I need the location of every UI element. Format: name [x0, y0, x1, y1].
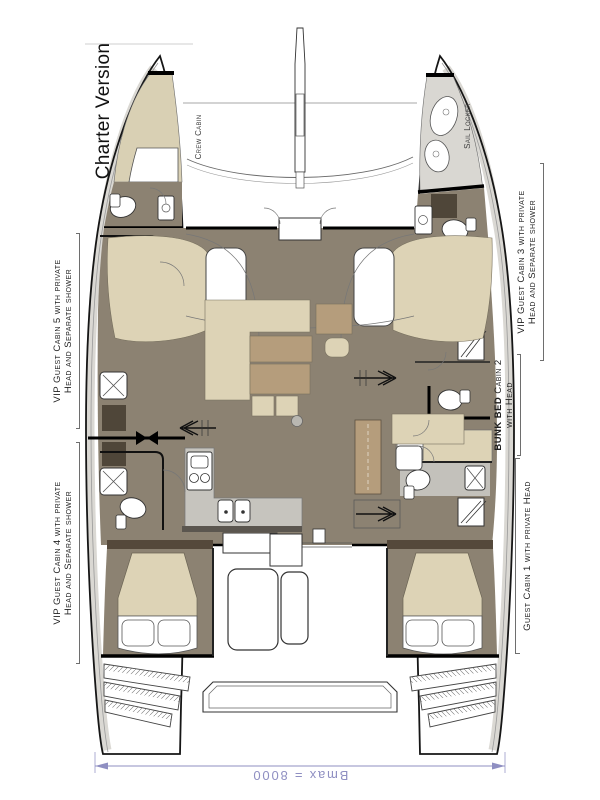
cockpit-step	[270, 534, 302, 566]
transom-steps-port	[104, 664, 190, 727]
crew-bed-foot	[129, 148, 178, 182]
seat	[250, 364, 310, 394]
aft-platform	[203, 682, 397, 712]
label-cabin-4: VIP Guest Cabin 4 with private Head and …	[0, 539, 177, 567]
pillow	[406, 620, 438, 646]
cockpit-bench	[223, 533, 277, 553]
cockpit-table	[281, 572, 308, 644]
label-cabin-1: Guest Cabin 1 with private Head	[426, 546, 600, 566]
cistern	[466, 218, 476, 231]
bracket	[76, 233, 80, 429]
label-cabin-5: VIP Guest Cabin 5 with private Head and …	[0, 317, 164, 345]
bracket	[540, 163, 544, 361]
table-leg	[292, 416, 303, 427]
label-cabin-3: VIP Guest Cabin 3 with private Head and …	[431, 248, 600, 276]
cistern	[116, 515, 126, 529]
page-title: Charter Version	[93, 43, 115, 180]
fwd-seat	[354, 248, 394, 326]
table	[316, 304, 352, 334]
label-dimension: Bmax = 8000	[228, 768, 372, 783]
galley-back	[182, 526, 302, 532]
label-cabin-2: BUNK BED Cabin 2 with Head	[456, 391, 558, 419]
arrowhead-left-icon	[95, 763, 108, 770]
bracket	[76, 442, 80, 664]
pillow	[442, 620, 474, 646]
foredeck-door	[279, 218, 321, 240]
cabinet	[102, 442, 126, 466]
pouf	[325, 338, 349, 357]
cushion	[276, 396, 298, 416]
cistern	[110, 194, 120, 207]
stove	[187, 452, 212, 490]
pillow	[158, 620, 190, 646]
bowsprit	[295, 28, 305, 188]
cockpit	[203, 529, 397, 712]
table	[250, 336, 312, 362]
cabinet	[102, 405, 126, 431]
arrowhead-right-icon	[492, 763, 505, 770]
nav-seat	[396, 446, 422, 470]
chart-table	[392, 414, 464, 444]
label-sail-locker: Sail Locker	[438, 120, 496, 132]
cockpit-table	[228, 569, 278, 650]
pillow	[122, 620, 154, 646]
bracket	[517, 354, 521, 456]
cushion	[252, 396, 274, 416]
label-charter-version: Charter Version	[34, 99, 174, 123]
cabinet	[431, 194, 457, 218]
cistern	[404, 486, 414, 499]
sink	[415, 206, 432, 234]
label-crew-cabin: Crew Cabin	[168, 131, 228, 143]
charter-floorplan-page: Charter Version Crew Cabin Sail Locker V…	[0, 0, 600, 800]
sink	[158, 196, 174, 220]
cockpit-fitting	[313, 529, 325, 543]
bracket	[515, 458, 520, 654]
transom-steps-starboard	[410, 664, 496, 727]
